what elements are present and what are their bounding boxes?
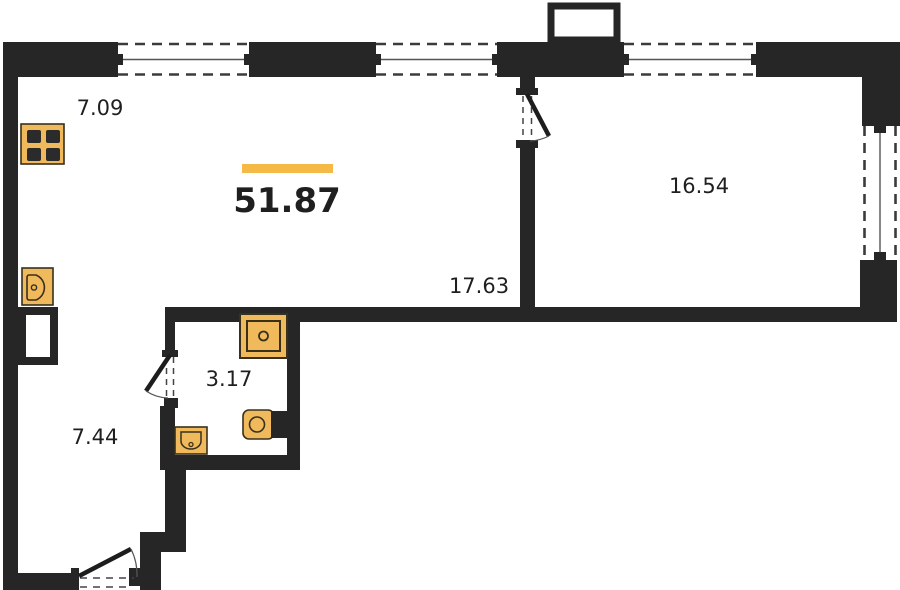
wall-segment xyxy=(497,42,624,77)
wall-segment xyxy=(520,146,535,307)
window-jamb xyxy=(372,54,381,65)
door-jamb xyxy=(129,568,142,586)
room-area-label-hallway: 7.44 xyxy=(72,425,119,449)
wall-segment xyxy=(160,406,175,457)
room-area-label-living: 17.63 xyxy=(449,274,509,298)
window-jamb xyxy=(874,124,886,133)
toilet-bowl xyxy=(243,410,274,439)
washbasin-icon xyxy=(175,427,207,454)
room-area-label-bedroom: 16.54 xyxy=(669,174,729,198)
window-jamb xyxy=(874,252,886,261)
wall-segment xyxy=(3,42,118,77)
stove-burner xyxy=(27,148,41,161)
door-jamb xyxy=(516,88,538,95)
door-leaf xyxy=(79,549,131,576)
wall-segment xyxy=(3,573,79,590)
door-swing-arc xyxy=(530,136,549,141)
wall-segment xyxy=(165,320,175,354)
total-area-label: 51.87 xyxy=(233,181,341,221)
accent-bar xyxy=(242,164,333,173)
wall-segment xyxy=(140,532,186,552)
stove-burner xyxy=(46,130,60,143)
window xyxy=(372,44,501,75)
wall-segment xyxy=(287,320,300,470)
wall-segment xyxy=(160,455,300,470)
stove-icon xyxy=(21,124,64,164)
floor-plan-canvas: 7.09 51.87 17.63 16.54 3.17 7.44 xyxy=(0,0,900,590)
window-jamb xyxy=(751,54,760,65)
shower-icon xyxy=(240,314,287,358)
wall-segment xyxy=(3,42,18,590)
toilet-tank xyxy=(271,411,287,438)
window-jamb xyxy=(492,54,501,65)
stove-burner xyxy=(46,148,60,161)
vent-shaft xyxy=(22,311,54,361)
wall-segment xyxy=(140,550,161,590)
room-area-label-bathroom: 3.17 xyxy=(206,367,253,391)
wall-segment xyxy=(862,77,900,126)
entrance-door xyxy=(79,549,137,587)
room-area-label-kitchen: 7.09 xyxy=(77,96,124,120)
floor-plan: 7.09 51.87 17.63 16.54 3.17 7.44 xyxy=(0,0,900,590)
door-swing-arc xyxy=(146,391,168,398)
door-jamb xyxy=(71,568,79,580)
wall-segment xyxy=(249,42,376,77)
window-jamb xyxy=(620,54,629,65)
window xyxy=(620,44,760,75)
window xyxy=(114,44,253,75)
bedroom-door xyxy=(523,94,549,141)
wall-segment xyxy=(165,470,186,534)
washbasin-body xyxy=(175,427,207,454)
roof-shaft xyxy=(551,6,617,40)
window xyxy=(865,124,896,261)
window-jamb xyxy=(114,54,123,65)
window-jamb xyxy=(244,54,253,65)
bathroom-door xyxy=(146,355,174,398)
labels: 7.09 51.87 17.63 16.54 3.17 7.44 xyxy=(72,96,729,449)
door-leaf xyxy=(527,94,549,136)
stove-burner xyxy=(27,130,41,143)
wall-segment xyxy=(756,42,900,77)
kitchen-sink-icon xyxy=(22,268,53,305)
toilet-icon xyxy=(243,410,287,439)
walls xyxy=(3,42,900,590)
